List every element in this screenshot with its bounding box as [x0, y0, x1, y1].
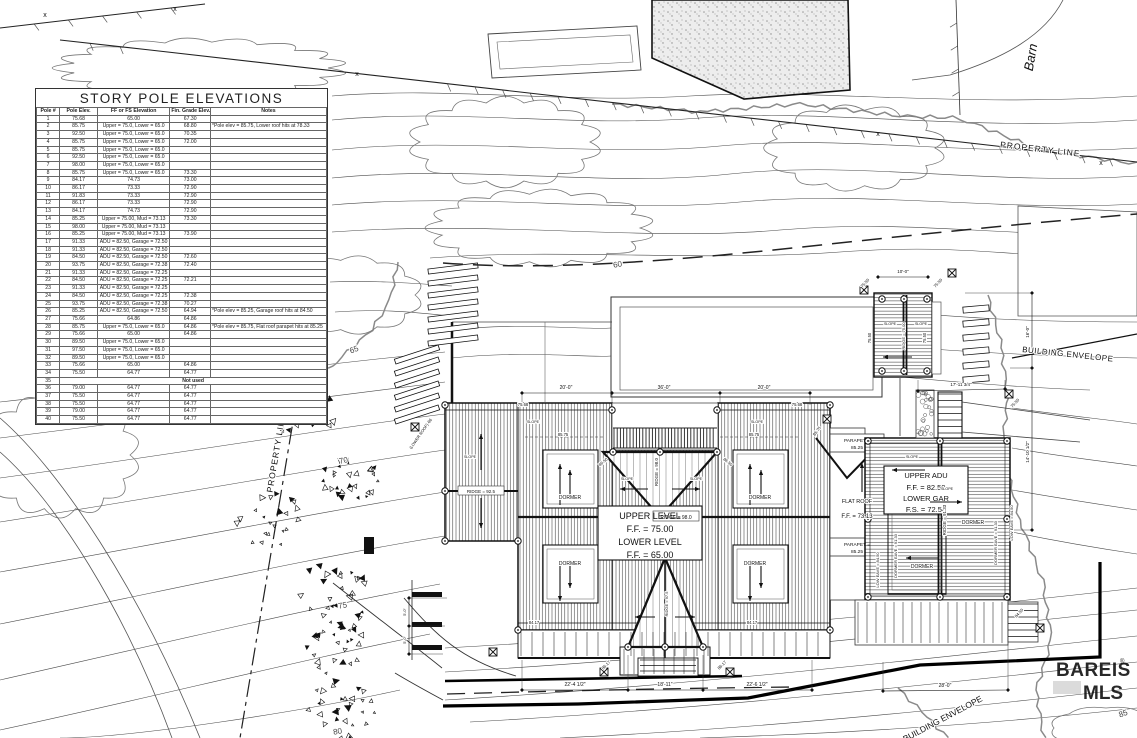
col-fin-grade: Fin. Grade Elev.: [170, 108, 211, 116]
dim-20a: 20'-0": [560, 385, 573, 391]
lower-level-label: LOWER LEVEL: [618, 537, 682, 547]
table-row: 1485.25Upper = 75.00, Mud = 73.1373.30: [37, 215, 327, 223]
table-row: 798.00Upper = 75.0, Lower = 65.0: [37, 161, 327, 169]
x-mark: x: [1099, 160, 1103, 167]
shrub-mark: [317, 711, 325, 719]
dim-36: 36'-0": [658, 385, 671, 391]
table-row: 1984.50ADU = 82.50, Garage = 72.5072.60: [37, 254, 327, 262]
ridge-left-wing-label: RIDGE = 92.5: [467, 489, 496, 494]
fence-tick: [475, 87, 478, 94]
fence-tick: [972, 143, 975, 150]
shrub-mark: [322, 630, 326, 634]
dim-18: 18'-11": [657, 682, 672, 688]
shrub-mark: [343, 717, 350, 724]
pole-elevation-label: 75.68: [792, 402, 803, 407]
stair-tread: [428, 311, 478, 322]
stair-tread: [428, 287, 478, 298]
shrub-mark: [234, 519, 242, 527]
fence-tick: [585, 100, 588, 107]
table-row: 2885.75Upper = 75.0, Lower = 65.064.86*P…: [37, 323, 327, 331]
dormer-label: DORMER: [559, 495, 582, 501]
stair-tread: [428, 299, 478, 310]
shrub-mark: [306, 566, 314, 574]
shrub-mark: [291, 500, 296, 505]
table-row: 285.75Upper = 75.0, Lower = 65.068.80*Po…: [37, 123, 327, 131]
fence-tick: [751, 118, 754, 125]
shrub-mark: [323, 721, 328, 727]
barn-yard-line: [912, 0, 1063, 80]
tree-clusters: [234, 382, 380, 738]
x-mark: x: [43, 12, 47, 19]
dimension-tick: [881, 689, 885, 693]
shrub-mark: [288, 495, 295, 502]
landing-step: [412, 592, 442, 597]
shrub-mark: [322, 466, 328, 472]
fence-tick: [448, 84, 451, 91]
col-ff-fs: FF or FS Elevation: [97, 108, 170, 116]
shrub-mark: [340, 659, 348, 667]
shrub-mark: [353, 483, 359, 489]
lower-gar-label: LOWER GAR: [903, 494, 949, 503]
lower-level-ff: F.F. = 65.00: [627, 550, 674, 560]
ridge-adu-label: RIDGE = 91.33: [942, 504, 947, 535]
path-curve: [395, 673, 443, 700]
drive-curve: [0, 452, 172, 738]
fence-tick: [530, 93, 533, 100]
dim-22b: 22'-6 1/2": [746, 682, 767, 688]
slope-tag: SLOPE: [941, 487, 954, 491]
shrub-mark: [269, 494, 274, 500]
shrub-mark: [284, 528, 288, 532]
dormer-eave-left-label: DORMER EAVE = 91.33: [893, 533, 898, 578]
shrub-mark: [355, 658, 359, 662]
x-mark: x: [355, 71, 359, 78]
table-row: 3875.5064.7764.77: [37, 400, 327, 408]
shrub-mark: [357, 496, 361, 500]
shrub-mark: [315, 688, 318, 691]
watermark-line2: MLS: [1083, 683, 1123, 704]
slope-tag: SLOPE: [884, 322, 897, 326]
shrub-mark: [314, 659, 321, 666]
fence-tick: [68, 20, 73, 26]
shrub-mark: [257, 493, 265, 501]
shrub-mark: [337, 573, 344, 580]
dimension-tick: [876, 275, 880, 279]
adu-stair: [1008, 602, 1038, 642]
table-row: 692.50Upper = 75.0, Lower = 65.0: [37, 154, 327, 162]
shrub-mark: [350, 571, 353, 574]
shrub-mark: [321, 484, 329, 492]
table-row: 2685.25ADU = 82.50, Garage = 72.5064.94*…: [37, 308, 327, 316]
canopy-outline: [410, 96, 601, 188]
pad-outline: [1018, 206, 1137, 316]
shrub-mark: [325, 672, 327, 675]
shrub-mark: [319, 577, 326, 584]
dim-5: 5'-0": [403, 608, 407, 616]
stair-tread: [963, 305, 989, 313]
shrub-mark: [346, 470, 354, 478]
site-plan-page: 75.6875.6885.7585.7585.7575.6686.1786.17…: [0, 0, 1137, 738]
shrub-mark: [328, 596, 333, 601]
parapet-value: 85.25: [851, 445, 863, 451]
shrub-mark: [355, 641, 362, 648]
fence-tick: [950, 23, 957, 27]
dimension-tick: [810, 688, 814, 692]
shrub-mark: [333, 633, 336, 636]
story-pole-elevations-table: STORY POLE ELEVATIONS Pole # Pole Elev. …: [35, 88, 328, 425]
shrub-mark: [280, 543, 283, 546]
shrub-mark: [274, 508, 283, 517]
pole-elevation-label: 75.68: [518, 402, 529, 407]
table-row: 3775.5064.7764.77: [37, 393, 327, 401]
contour-label-85: 85: [1117, 708, 1129, 720]
pole-elevation-label: 75.50: [1010, 397, 1021, 409]
dim-16: 16'-0": [1025, 326, 1030, 338]
pole-elevation-label: 85.75: [558, 432, 569, 437]
shrub-mark: [332, 474, 336, 477]
shrub-mark: [353, 471, 360, 478]
pole-elevation-label: 85.75: [749, 432, 760, 437]
shrub-mark: [332, 566, 340, 574]
fence-tick: [120, 47, 123, 54]
shrub-mark: [368, 699, 373, 704]
shrub-mark: [361, 688, 366, 694]
fence-tick: [951, 46, 958, 50]
stair-tread: [963, 347, 989, 355]
story-pole-table: Pole # Pole Elev. FF or FS Elevation Fin…: [36, 107, 327, 424]
shrub-mark: [361, 699, 364, 702]
stair-right: [938, 392, 962, 438]
table-row: 2391.33ADU = 82.50, Garage = 72.25: [37, 285, 327, 293]
shrub-mark: [325, 571, 331, 578]
pole-elevation-label: 75.50: [922, 332, 927, 343]
shrub-mark: [373, 711, 376, 713]
shrub-mark: [297, 591, 304, 598]
adu-roof: [865, 438, 1010, 600]
retaining-wall-line: [445, 676, 742, 681]
contour-label-75: 75: [337, 600, 348, 611]
pole-elevation-label: 84.17: [747, 620, 758, 625]
shrub-mark: [365, 722, 369, 726]
contour-label-80: 80: [332, 726, 343, 737]
contour-label-70: 70: [338, 455, 349, 466]
shrub-mark: [361, 611, 364, 614]
table-row: 2284.50ADU = 82.50, Garage = 72.2572.21: [37, 277, 327, 285]
shrub-mark: [260, 541, 265, 545]
dimension-tick: [407, 596, 411, 600]
dimension-tick: [407, 652, 411, 656]
dormer-label: DORMER: [749, 495, 772, 501]
landing-step: [412, 622, 442, 627]
stair-tread: [428, 263, 478, 274]
dormer-label: DORMER: [559, 561, 582, 567]
shrub-mark: [346, 640, 349, 643]
shrub-mark: [349, 661, 354, 666]
shrub-mark: [348, 629, 351, 632]
dormer-label: DORMER: [744, 561, 767, 567]
ridge-lower-gable-label: RIDGE = 97.5: [664, 591, 669, 617]
shrub-mark: [282, 529, 285, 532]
adu-deck: [855, 600, 1008, 645]
slope-tag: SLOPE: [915, 322, 928, 326]
shrub-mark: [328, 486, 335, 492]
dim-14: 14'-10 1/2": [1025, 441, 1030, 463]
shrub-mark: [318, 699, 325, 706]
barn-label: Barn: [1021, 42, 1041, 72]
bareis-mls-watermark: BAREIS ® MLS: [1053, 658, 1131, 704]
dim-28: 28'-0": [939, 683, 952, 689]
col-notes: Notes: [210, 108, 326, 116]
dim-10: 10'-0": [897, 269, 909, 274]
fence-line: [956, 0, 960, 115]
fence-tick: [137, 12, 142, 18]
dimension-tick: [1030, 528, 1034, 532]
shrub-mark: [354, 612, 360, 619]
shrub-mark: [284, 511, 290, 516]
barn-building: [652, 0, 850, 99]
pole-elevation-label: 75.50: [867, 332, 872, 343]
dimension-tick: [926, 275, 930, 279]
upper-adu-ff: F.F. = 82.50: [907, 483, 946, 492]
table-header-row: Pole # Pole Elev. FF or FS Elevation Fin…: [37, 108, 327, 116]
table-row: 585.75Upper = 75.0, Lower = 65.0: [37, 146, 327, 154]
fence-tick: [944, 140, 947, 147]
col-pole-number: Pole #: [37, 108, 60, 116]
slope-tag: SLOPE: [690, 477, 703, 481]
shrub-mark: [365, 495, 368, 498]
slope-tag: SLOPE: [906, 455, 919, 459]
table-row: 1598.00Upper = 75.00, Mud = 73.13: [37, 223, 327, 231]
x-mark: x: [173, 6, 177, 13]
pole-elevation-label: 75.50: [933, 277, 944, 289]
shrub-mark: [316, 563, 323, 570]
dimension-tick: [520, 391, 524, 395]
shrub-mark: [329, 621, 332, 624]
shrub-mark: [334, 717, 339, 722]
table-row: 1286.1773.3372.90: [37, 200, 327, 208]
parapet-label: PARAPET =: [844, 542, 870, 548]
table-row: 2593.75ADU = 82.50, Garage = 72.3870.27: [37, 300, 327, 308]
landing-step: [412, 645, 442, 650]
shrub-mark: [312, 653, 316, 657]
stair-tread: [963, 319, 989, 327]
shrub-mark: [377, 480, 380, 483]
contour-label-60: 60: [612, 259, 623, 270]
table-row: 1791.33ADU = 82.50, Garage = 72.50: [37, 238, 327, 246]
fence-tick: [952, 92, 959, 96]
watermark-reg: ®: [1120, 658, 1125, 665]
dormer-eave-right-label: DORMER EAVE = 91.33: [993, 520, 998, 565]
shrub-mark: [338, 495, 345, 501]
shrub-mark: [308, 607, 313, 612]
shrub-mark: [250, 541, 254, 545]
fence-tick: [861, 131, 864, 138]
fence-tick: [103, 16, 108, 22]
pole-elevation-label: 84.17: [529, 620, 540, 625]
stair-tread: [963, 361, 989, 369]
table-title: STORY POLE ELEVATIONS: [36, 89, 327, 107]
table-row: 3979.0064.7764.77: [37, 408, 327, 416]
upper-adu-label: UPPER ADU: [904, 471, 947, 480]
flat-roof-ff: F.F. = 73.13: [841, 514, 873, 520]
table-row: 1191.8373.3372.90: [37, 192, 327, 200]
dim-5: 5'-0": [403, 636, 407, 644]
shrub-mark: [320, 688, 327, 695]
dimension-tick: [520, 688, 524, 692]
table-row: 3679.0064.7764.77: [37, 385, 327, 393]
dimension-tick: [1006, 688, 1010, 692]
fence-tick: [34, 24, 39, 30]
table-row: 3375.6665.0064.86: [37, 362, 327, 370]
table-row: 3197.50Upper = 75.0, Lower = 65.0: [37, 346, 327, 354]
parapet-label: PARAPET =: [844, 438, 870, 444]
table-row: 4075.5064.7764.77: [37, 416, 327, 424]
contour-label-65: 65: [348, 344, 360, 356]
shrub-mark: [336, 641, 341, 645]
table-row: 2975.6665.0064.86: [37, 331, 327, 339]
table-row: 1384.1774.7372.90: [37, 208, 327, 216]
fence-tick: [834, 128, 837, 135]
shrub-mark: [361, 581, 368, 587]
dormer-label: DORMER: [962, 520, 985, 526]
canopy-outline: [425, 189, 653, 267]
ridge-carport-label: RIDGE = 75.00: [901, 322, 906, 350]
fence-tick: [889, 134, 892, 141]
outbuilding: [488, 26, 641, 78]
slope-tag: SLOPE: [621, 477, 634, 481]
shrub-mark: [318, 702, 320, 705]
table-row: 2093.75ADU = 82.50, Garage = 72.3872.40: [37, 262, 327, 270]
shrub-mark: [317, 665, 322, 670]
utility-box: [364, 537, 374, 554]
shrub-mark: [305, 644, 310, 649]
dim-17: 17'-11 3/4": [950, 382, 972, 387]
upper-level-ff: F.F. = 75.00: [627, 524, 674, 534]
table-row: 3289.50Upper = 75.0, Lower = 65.0: [37, 354, 327, 362]
table-row: 392.50Upper = 75.0, Lower = 65.070.35: [37, 131, 327, 139]
dormer-label: DORMER: [911, 564, 934, 570]
low-eave-right-label: LOW EAVE = 84.50: [1009, 505, 1014, 541]
col-pole-elev: Pole Elev.: [60, 108, 98, 116]
parapet-value: 85.25: [851, 549, 863, 555]
shrub-mark: [343, 697, 347, 701]
shrub-mark: [332, 470, 337, 474]
table-row: 3475.5064.7764.77: [37, 369, 327, 377]
dimension-tick: [1030, 366, 1034, 370]
dim-20b: 20'-0": [758, 385, 771, 391]
shrub-mark: [350, 638, 353, 641]
stair-tread: [428, 275, 478, 286]
shrub-mark: [340, 697, 343, 700]
path-curve: [404, 598, 516, 676]
shrub-mark: [333, 658, 338, 663]
shrub-mark: [293, 505, 301, 513]
shrub-mark: [344, 705, 351, 712]
stair-tread: [963, 333, 989, 341]
fence-trace-line: [328, 262, 398, 368]
slope-tag: SLOPE: [527, 420, 540, 424]
slope-tag: SLOPE: [751, 420, 764, 424]
shrub-mark: [351, 724, 353, 726]
shrub-mark: [263, 516, 265, 519]
pool-inner: [620, 307, 873, 390]
table-row: 175.6865.0067.30: [37, 115, 327, 123]
table-row: 1891.33ADU = 82.50, Garage = 72.50: [37, 246, 327, 254]
fence-tick: [916, 137, 919, 144]
lower-gar-fs: F.S. = 72.50: [906, 505, 946, 514]
shrub-mark: [358, 632, 366, 640]
table-row: 1086.1773.3372.90: [37, 185, 327, 193]
table-row: 984.1774.7373.00: [37, 177, 327, 185]
dim-22a: 22'-4 1/2": [564, 682, 585, 688]
shrub-mark: [366, 489, 372, 495]
dimension-tick: [626, 688, 630, 692]
table-row: 35Not used: [37, 377, 327, 385]
ridge-main-label-vertical: RIDGE = 98.0: [654, 457, 659, 486]
fence-tick: [806, 125, 809, 132]
table-row: 885.75Upper = 75.0, Lower = 65.073.30: [37, 169, 327, 177]
shrub-mark: [320, 612, 327, 619]
shrub-mark: [361, 711, 364, 714]
property-line-top-label: PROPERTY LINE: [1000, 139, 1081, 158]
ridge-main-label: RIDGE = 98.0: [660, 515, 691, 521]
x-mark: x: [876, 131, 880, 138]
flat-roof-label: FLAT ROOF: [842, 499, 873, 505]
shrub-mark: [342, 646, 347, 651]
fence-tick: [558, 97, 561, 104]
low-eave-left-label: LOW EAVE = 84.50: [875, 552, 880, 588]
table-row: 2775.6664.8664.86: [37, 315, 327, 323]
bay-stair: [638, 658, 698, 676]
fence-tick: [90, 43, 93, 50]
slope-tag: SLOPE: [464, 455, 477, 459]
shrub-mark: [321, 479, 324, 482]
table-row: 2484.50ADU = 82.50, Garage = 72.2572.38: [37, 292, 327, 300]
shrub-mark: [355, 685, 361, 691]
dimension-tick: [407, 624, 411, 628]
table-row: 485.75Upper = 75.0, Lower = 65.072.00: [37, 138, 327, 146]
drive-curve: [0, 418, 200, 738]
shrub-mark: [335, 486, 339, 490]
shrub-mark: [331, 676, 340, 685]
shrub-mark: [254, 509, 257, 512]
table-row: 3089.50Upper = 75.0, Lower = 65.0: [37, 339, 327, 347]
table-row: 1685.25Upper = 75.00, Mud = 73.1373.90: [37, 231, 327, 239]
dashed-setback: [447, 687, 795, 694]
table-row: 2191.33ADU = 82.50, Garage = 72.25: [37, 269, 327, 277]
